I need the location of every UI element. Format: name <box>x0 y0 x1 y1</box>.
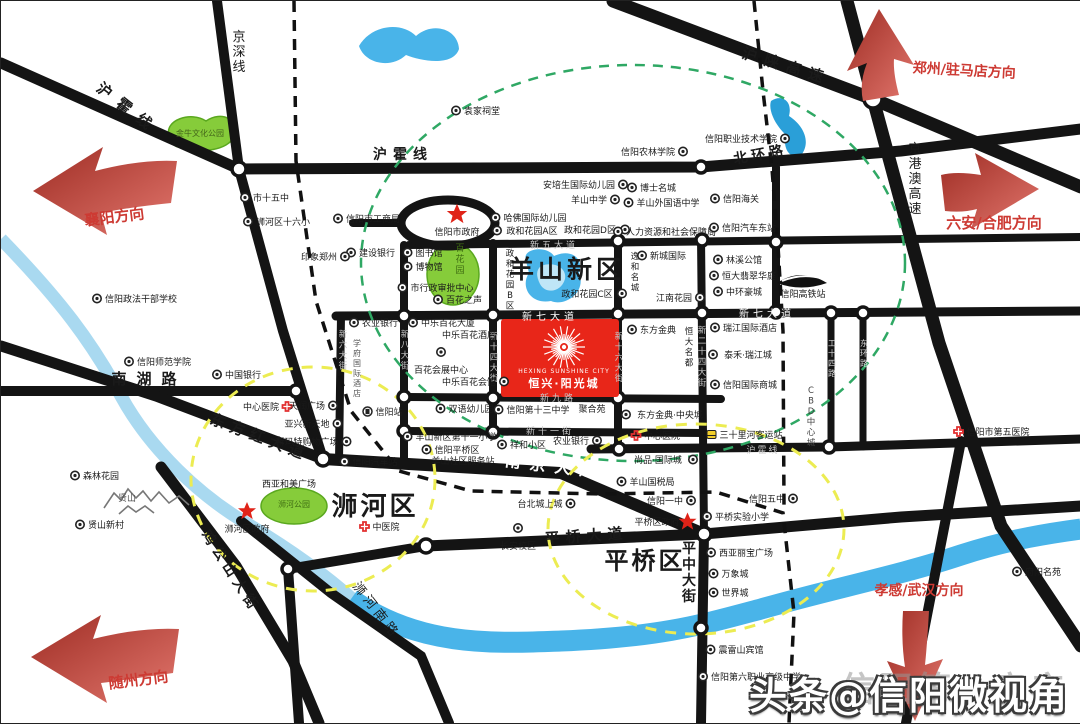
ring-icon <box>709 588 717 596</box>
road-jinggangao-expressway: 京港澳高速 <box>908 142 921 217</box>
ring-icon <box>403 248 411 256</box>
svg-text:沪霍线: 沪霍线 <box>746 444 779 456</box>
road-nanhu-road: 南湖路 <box>111 370 186 388</box>
poi-tianrun-plaza: 天润广场 <box>289 400 337 412</box>
svg-text:羊山新区: 羊山新区 <box>509 255 625 284</box>
poi-yangshan-tax-bureau: 羊山国税局 <box>617 476 674 488</box>
svg-text:新城国际: 新城国际 <box>650 250 686 262</box>
ring-icon <box>714 255 722 263</box>
svg-text:京港澳高速: 京港澳高速 <box>908 142 921 217</box>
svg-text:信阳职业技术学院: 信阳职业技术学院 <box>705 133 777 145</box>
svg-text:羊山外国语中学: 羊山外国语中学 <box>636 197 699 209</box>
poi-baihua-zhisheng: 百花之声 <box>434 294 482 306</box>
svg-text:尚品·国际城: 尚品·国际城 <box>634 454 682 466</box>
poi-dongfang-jindian-central-city: 东方金典·中央城 <box>622 409 703 421</box>
ring-icon <box>514 524 522 532</box>
poi-xuefu-international-hotel: 学府国际酒店 <box>353 338 361 398</box>
poi-linxi-mansion: 林溪公馆 <box>714 254 762 266</box>
svg-text:西亚丽宝广场: 西亚丽宝广场 <box>719 547 773 559</box>
svg-text:新五大道: 新五大道 <box>530 239 578 251</box>
ring-icon <box>76 520 84 528</box>
svg-text:信阳汽车东站: 信阳汽车东站 <box>722 222 776 234</box>
poi-jinniu-culture-park: 金牛文化公园 <box>176 128 224 138</box>
poi-shihe-park: 浉河公园 <box>278 499 310 509</box>
svg-text:羊山新区第十一小学: 羊山新区第十一小学 <box>415 431 496 443</box>
poi-bilingual-kindergarten: 双语幼儿园 <box>436 403 493 415</box>
poi-jiangnan-garden: 江南花园 <box>656 292 704 304</box>
svg-text:新七大道: 新七大道 <box>522 310 578 323</box>
ring-icon <box>241 193 249 201</box>
svg-text:金牛文化公园: 金牛文化公园 <box>176 128 224 138</box>
ring-icon <box>437 348 445 356</box>
district-shihe: 浉河区 <box>331 492 418 522</box>
ring-icon <box>491 213 499 221</box>
poi-baihua-exhibition-center: 百花会展中心 <box>414 348 468 376</box>
svg-text:六安/合肥方向: 六安/合肥方向 <box>946 214 1041 232</box>
direction-zhengzhou-zhumadian: 郑州/驻马店方向 <box>912 59 1016 81</box>
svg-text:浉河区政府: 浉河区政府 <box>224 523 269 535</box>
road-jingshen-line: 京深线 <box>232 30 245 75</box>
road-pingqiao-avenue: 平桥大道 <box>544 524 629 548</box>
poi-xinyang-normal-college: 信阳师范学院 <box>125 356 191 368</box>
ring-icon <box>329 401 337 409</box>
ring-icon <box>452 106 460 114</box>
poi-no13-middle-school: 信阳第十三中学 <box>494 404 569 416</box>
svg-text:东方金典·中央城: 东方金典·中央城 <box>637 409 703 421</box>
svg-text:新十六大街: 新十六大街 <box>615 331 624 384</box>
ring-icon <box>679 147 687 155</box>
svg-text:信阳汽车站: 信阳汽车站 <box>352 456 397 468</box>
ring-icon <box>422 445 430 453</box>
svg-text:京深线: 京深线 <box>232 30 245 75</box>
poi-vocational-technical-college: 信阳职业技术学院 <box>705 133 789 145</box>
poi-taihe-ruijiang-city: 泰禾·瑞江城 <box>709 349 772 361</box>
ring-icon <box>71 471 79 479</box>
svg-text:信阳第十三中学: 信阳第十三中学 <box>506 404 569 416</box>
svg-text:中心医院: 中心医院 <box>243 401 279 413</box>
ring-icon <box>566 499 574 507</box>
svg-text:长安校区: 长安校区 <box>500 540 536 552</box>
svg-text:郑州/驻马店方向: 郑州/驻马店方向 <box>912 59 1016 81</box>
poi-yinxiang-zhengzhou: 印象郑州 <box>301 251 349 263</box>
svg-text:瑞江国际酒店: 瑞江国际酒店 <box>723 322 777 334</box>
poi-shijiecheng: 世界城 <box>709 587 748 599</box>
ring-icon <box>611 195 619 203</box>
poi-construction-bank: 建设银行 <box>347 247 395 259</box>
svg-text:信阳海关: 信阳海关 <box>723 193 759 205</box>
svg-text:信阳市政府: 信阳市政府 <box>434 226 479 238</box>
poi-boshi-mingcheng: 博士名城 <box>628 182 676 194</box>
svg-text:三十里河客运站: 三十里河客运站 <box>719 429 782 441</box>
arrow-suizhou <box>31 615 179 703</box>
svg-text:东环路: 东环路 <box>860 338 868 368</box>
cross-icon <box>360 522 369 531</box>
svg-text:市十五中: 市十五中 <box>253 192 289 204</box>
road-xinliu-street: 新六大街 <box>339 329 348 372</box>
road-xinshiliu-street: 新十六大街 <box>615 331 624 384</box>
ring-icon <box>434 295 442 303</box>
ring-icon <box>494 405 502 413</box>
map-frame: HEXING SUNSHINE CITY 恒兴·阳光城 沪霍线京深线沪霍线沪陕高… <box>0 0 1080 724</box>
svg-text:双语幼儿园: 双语幼儿园 <box>448 403 493 415</box>
ring-icon <box>398 283 406 291</box>
svg-text:政和花园D区: 政和花园D区 <box>564 224 616 236</box>
poi-xinyang-no1-high-school: 信阳一中 <box>647 495 695 507</box>
road-huhuo-line-east: 沪霍线 <box>746 444 779 456</box>
svg-text:图书馆: 图书馆 <box>415 247 442 259</box>
svg-text:建设银行: 建设银行 <box>359 247 395 259</box>
svg-text:百花园: 百花园 <box>455 243 464 276</box>
poi-xinyang-city-government: 信阳市政府 <box>434 204 479 238</box>
arrow-xiaogan-wuhan <box>887 611 943 721</box>
poi-agriculture-forestry-college: 信阳农林学院 <box>621 146 687 158</box>
ring-icon <box>714 287 722 295</box>
svg-text:浉河区: 浉河区 <box>331 492 418 522</box>
ring-icon <box>1013 567 1021 575</box>
poi-human-resources-bureau: 人力资源和社会保障局 <box>614 226 716 238</box>
poi-harvard-kindergarten: 哈佛国际幼儿园 <box>491 212 566 224</box>
ring-icon <box>789 494 797 502</box>
ring-icon <box>706 645 714 653</box>
poi-xinyang-hsr-station: 信阳高铁站 <box>780 288 825 300</box>
svg-text:江南花园: 江南花园 <box>656 292 692 304</box>
svg-text:聚合苑: 聚合苑 <box>578 403 605 415</box>
svg-text:恒大翡翠华庭: 恒大翡翠华庭 <box>722 270 776 282</box>
ring-icon <box>710 271 718 279</box>
poi-juheyuan: 聚合苑 <box>578 403 605 415</box>
svg-text:逸和名城: 逸和名城 <box>631 251 640 294</box>
bus-icon <box>707 431 716 439</box>
poi-no6-vocational-high-school: 信阳第六职业高级中学 <box>699 671 801 683</box>
poi-sanshilihe-bus-station: 三十里河客运站 <box>707 429 783 441</box>
svg-text:工十四路: 工十四路 <box>828 339 836 378</box>
svg-text:平桥大道: 平桥大道 <box>544 524 629 548</box>
svg-text:新玛特购物广场: 新玛特购物广场 <box>275 436 338 448</box>
svg-text:平桥区政府: 平桥区政府 <box>634 516 679 528</box>
poi-xinyang-railway-station: 信阳站 <box>363 406 403 418</box>
svg-text:市行政审批中心: 市行政审批中心 <box>410 282 473 294</box>
poi-traditional-chinese-hospital: 中医院 <box>360 521 400 533</box>
svg-text:浉河区十六小: 浉河区十六小 <box>256 216 310 228</box>
svg-text:印象郑州: 印象郑州 <box>301 251 337 263</box>
svg-text:浉河公园: 浉河公园 <box>278 499 310 509</box>
svg-text:新六大街: 新六大街 <box>339 329 348 372</box>
svg-text:安培生国际幼儿园: 安培生国际幼儿园 <box>543 179 615 191</box>
poi-agricultural-bank-west: 农业银行 <box>350 317 398 329</box>
ring-icon <box>619 180 627 188</box>
poi-taibeicheng-shangcheng: 台北城上城 <box>517 498 574 510</box>
road-donghuan-road: 东环路 <box>860 338 868 368</box>
ring-icon <box>696 293 704 301</box>
poi-yihe-mingcheng: 逸和名城 <box>631 251 640 294</box>
sunburst-core <box>562 345 566 349</box>
direction-xiaogan-wuhan: 孝感/武汉方向 <box>873 582 963 599</box>
svg-text:信阳农林学院: 信阳农林学院 <box>621 146 675 158</box>
road-huhuo-line-n: 沪霍线 <box>373 146 433 163</box>
poi-zhenghe-garden-b: 政和花园B区 <box>506 248 515 312</box>
road-jigongshan-street: 鸡公山大街 <box>197 526 264 616</box>
poi-wanxiangcheng: 万象城 <box>709 568 748 580</box>
poi-zhongle-baihua-hotel: 中乐百花酒店 <box>442 329 496 341</box>
poi-anpeisheng-kindergarten: 安培生国际幼儿园 <box>543 179 627 191</box>
ring-icon <box>711 323 719 331</box>
star-icon <box>447 204 467 223</box>
svg-text:政和花园C区: 政和花园C区 <box>561 288 612 300</box>
ring-icon <box>493 226 501 234</box>
svg-text:信阳师范学院: 信阳师范学院 <box>137 356 191 368</box>
poi-bank-of-china: 中国银行 <box>213 369 261 381</box>
area-cbd-center-city: CBD中心城 <box>807 386 816 449</box>
ring-icon <box>350 318 358 326</box>
ring-icon <box>614 227 622 235</box>
svg-text:信阳市工商局: 信阳市工商局 <box>346 213 400 225</box>
ring-icon <box>498 440 506 448</box>
poi-administrative-approval-center: 市行政审批中心 <box>398 282 473 294</box>
road-ring-city-government <box>401 200 495 246</box>
svg-text:政和花园A区: 政和花园A区 <box>506 225 557 237</box>
svg-text:西亚和美广场: 西亚和美广场 <box>262 478 316 490</box>
poi-xianghe-community: 祥和小区 <box>498 439 546 451</box>
ring-icon <box>244 217 252 225</box>
hsr-station-icon <box>777 275 827 288</box>
ring-icon <box>710 223 718 231</box>
poi-hengda-mingdu: 恒大名都 <box>685 326 694 369</box>
road-xinwu-avenue: 新五大道 <box>530 239 578 251</box>
svg-text:CBD中心城: CBD中心城 <box>807 386 816 449</box>
ring-icon <box>709 569 717 577</box>
svg-text:震雷山宾馆: 震雷山宾馆 <box>718 644 763 656</box>
svg-text:农业银行: 农业银行 <box>553 435 589 447</box>
ring-icon <box>125 357 133 365</box>
svg-text:袁家祠堂: 袁家祠堂 <box>464 105 500 117</box>
svg-text:鸡公山大街: 鸡公山大街 <box>197 526 264 616</box>
ring-icon <box>403 432 411 440</box>
svg-text:贤山新村: 贤山新村 <box>88 519 124 531</box>
landmark-name-cn: 恒兴·阳光城 <box>528 376 599 390</box>
svg-text:中环豪城: 中环豪城 <box>726 286 762 298</box>
svg-text:贤山: 贤山 <box>118 493 136 504</box>
ring-icon <box>781 134 789 142</box>
poi-xincheng-international: 新城国际 <box>638 250 686 262</box>
svg-text:信阳市第五医院: 信阳市第五医院 <box>966 426 1029 438</box>
svg-text:中乐百花大厦: 中乐百花大厦 <box>421 317 475 329</box>
road-xinba-street: 新八大街 <box>401 329 410 372</box>
svg-text:亚兴新天地: 亚兴新天地 <box>284 418 329 430</box>
svg-text:信阳政法干部学校: 信阳政法干部学校 <box>105 293 177 305</box>
ring-icon <box>341 252 349 260</box>
poi-xiya-libao-plaza: 西亚丽宝广场 <box>707 547 773 559</box>
svg-text:沪陕高速: 沪陕高速 <box>740 44 833 88</box>
road-xinershisi-street: 新二十四大街 <box>698 325 707 389</box>
svg-text:人力资源和社会保障局: 人力资源和社会保障局 <box>626 226 716 238</box>
poi-shangpin-international-city: 尚品·国际城 <box>634 454 697 466</box>
poi-xianshan-new-village: 贤山新村 <box>76 519 124 531</box>
ring-icon <box>213 370 221 378</box>
poi-zhenghe-garden-a: 政和花园A区 <box>493 225 558 237</box>
svg-text:恒大名都: 恒大名都 <box>685 326 694 369</box>
svg-text:政和花园B区: 政和花园B区 <box>506 248 515 312</box>
ring-icon <box>618 289 626 297</box>
poi-political-law-cadre-school: 信阳政法干部学校 <box>93 293 177 305</box>
svg-text:森林花园: 森林花园 <box>83 470 119 482</box>
poi-xinyang-international-mall: 信阳国际商城 <box>711 379 777 391</box>
svg-text:南湖路: 南湖路 <box>111 370 186 388</box>
ring-icon <box>707 548 715 556</box>
svg-text:信阳平桥区: 信阳平桥区 <box>434 444 479 456</box>
district-yangshan-new-district: 羊山新区 <box>509 255 625 284</box>
poi-zhongle-baihua-club: 中乐百花会馆 <box>442 376 508 388</box>
ring-icon <box>703 512 711 520</box>
ring-icon <box>500 377 508 385</box>
poi-xinyang-customs: 信阳海关 <box>711 193 759 205</box>
road-path-xinwu <box>409 237 1080 245</box>
svg-text:中乐百花酒店: 中乐百花酒店 <box>442 329 496 341</box>
poi-yangshan-middle-school: 羊山中学 <box>571 194 619 206</box>
poi-yangshan-foreign-language-school: 羊山外国语中学 <box>624 197 699 209</box>
poi-yaxing-new-world: 亚兴新天地 <box>284 418 341 430</box>
ring-icon <box>333 419 341 427</box>
svg-text:百花会展中心: 百花会展中心 <box>414 364 468 376</box>
ring-icon <box>628 325 636 333</box>
lake-north <box>359 27 459 63</box>
poi-museum: 博物馆 <box>403 261 442 273</box>
poi-zhonghuan-haocheng: 中环豪城 <box>714 286 762 298</box>
svg-text:中心医院: 中心医院 <box>644 430 680 442</box>
svg-text:世界城: 世界城 <box>721 587 748 599</box>
poi-xinyang-no5-high-school: 信阳五中 <box>749 493 797 505</box>
road-xinshiyi-street: 新十一街 <box>526 425 574 437</box>
svg-text:新八大街: 新八大街 <box>401 329 410 372</box>
svg-text:中医院: 中医院 <box>372 521 399 533</box>
svg-text:信阳站: 信阳站 <box>375 406 402 418</box>
road-xinqi-avenue-east: 新七大道 <box>739 307 795 320</box>
svg-text:新二十四大街: 新二十四大街 <box>698 325 707 389</box>
poi-yangshan-community-service: 羊山社区服务站 <box>431 455 494 467</box>
poi-xianshan-mountain: 贤山 <box>118 493 136 504</box>
svg-text:羊山社区服务站: 羊山社区服务站 <box>431 455 494 467</box>
train-icon <box>363 407 372 416</box>
svg-text:新九路: 新九路 <box>540 392 576 404</box>
poi-yangshan-no11-primary: 羊山新区第十一小学 <box>403 431 496 443</box>
landmark-hexing-sunshine-city: HEXING SUNSHINE CITY 恒兴·阳光城 <box>501 319 619 397</box>
svg-text:孝感/武汉方向: 孝感/武汉方向 <box>873 582 963 599</box>
poi-pingqiao-experimental-primary: 平桥实验小学 <box>703 511 769 523</box>
ring-icon <box>628 183 636 191</box>
svg-text:中乐百花会馆: 中乐百花会馆 <box>442 376 496 388</box>
ring-icon <box>711 194 719 202</box>
svg-text:百花之声: 百花之声 <box>446 294 482 306</box>
svg-text:泰禾·瑞江城: 泰禾·瑞江城 <box>724 349 772 361</box>
svg-text:新十一街: 新十一街 <box>526 425 574 437</box>
poi-industry-commerce-bureau: 信阳市工商局 <box>334 213 400 225</box>
svg-text:信阳五中: 信阳五中 <box>749 493 785 505</box>
district-pingqiao: 平桥区 <box>605 547 686 575</box>
poi-zhenleishan-hotel: 震雷山宾馆 <box>706 644 763 656</box>
ring-icon <box>699 672 707 680</box>
svg-text:哈佛国际幼儿园: 哈佛国际幼儿园 <box>503 212 566 224</box>
ring-icon <box>709 350 717 358</box>
svg-text:学府国际酒店: 学府国际酒店 <box>353 338 361 398</box>
ring-icon <box>334 214 342 222</box>
svg-text:台北城上城: 台北城上城 <box>517 498 562 510</box>
svg-text:羊山中学: 羊山中学 <box>571 194 607 206</box>
svg-text:农业银行: 农业银行 <box>362 317 398 329</box>
ring-icon <box>93 294 101 302</box>
city-location-map: HEXING SUNSHINE CITY 恒兴·阳光城 沪霍线京深线沪霍线沪陕高… <box>1 1 1080 723</box>
poi-library: 图书馆 <box>403 247 442 259</box>
road-hushan-expressway: 沪陕高速 <box>740 44 833 88</box>
svg-text:信阳一中: 信阳一中 <box>647 495 683 507</box>
road-xinqi-avenue-west: 新七大道 <box>522 310 578 323</box>
ring-icon <box>711 380 719 388</box>
svg-text:东方金典: 东方金典 <box>640 324 676 336</box>
poi-dongfang-jindian: 东方金典 <box>628 324 676 336</box>
svg-text:平桥区: 平桥区 <box>605 547 686 575</box>
ring-icon <box>342 437 350 445</box>
poi-baihua-garden: 百花园 <box>455 243 464 276</box>
poi-central-hospital-west: 中心医院 <box>243 401 292 413</box>
road-xinjiu-road: 新九路 <box>540 392 576 404</box>
ring-icon <box>340 457 348 465</box>
poi-forest-garden: 森林花园 <box>71 470 119 482</box>
poi-xiya-hemei-plaza: 西亚和美广场 <box>262 478 316 490</box>
direction-luan-hefei: 六安/合肥方向 <box>946 214 1041 232</box>
svg-text:万象城: 万象城 <box>721 568 748 580</box>
ring-icon <box>593 436 601 444</box>
poi-east-bus-station: 信阳汽车东站 <box>710 222 776 234</box>
svg-text:中国银行: 中国银行 <box>225 369 261 381</box>
ring-icon <box>624 198 632 206</box>
svg-text:信阳第六职业高级中学: 信阳第六职业高级中学 <box>711 671 801 683</box>
svg-text:新七大道: 新七大道 <box>739 307 795 320</box>
ring-icon <box>687 496 695 504</box>
ring-icon <box>617 477 625 485</box>
ring-icon <box>622 410 630 418</box>
poi-hengda-feicui-huating: 恒大翡翠华庭 <box>710 270 776 282</box>
svg-text:沪霍线: 沪霍线 <box>373 146 433 163</box>
ring-icon <box>403 262 411 270</box>
ring-icon <box>409 318 417 326</box>
svg-text:羊山国税局: 羊山国税局 <box>629 476 674 488</box>
svg-text:信阳高铁站: 信阳高铁站 <box>780 288 825 300</box>
ring-icon <box>436 404 444 412</box>
poi-ruijiang-international-hotel: 瑞江国际酒店 <box>711 322 777 334</box>
svg-text:林溪公馆: 林溪公馆 <box>726 254 762 266</box>
landmark-name-en: HEXING SUNSHINE CITY <box>518 368 609 375</box>
road-gongshisi-road: 工十四路 <box>828 339 836 378</box>
svg-text:信阳国际商城: 信阳国际商城 <box>723 379 777 391</box>
svg-text:天润广场: 天润广场 <box>289 400 325 412</box>
svg-text:府阳名苑: 府阳名苑 <box>1025 566 1061 578</box>
svg-text:博士名城: 博士名城 <box>640 182 676 194</box>
poi-fuyang-mingyuan: 府阳名苑 <box>1013 566 1061 578</box>
svg-text:平桥实验小学: 平桥实验小学 <box>715 511 769 523</box>
ring-icon <box>689 455 697 463</box>
svg-text:博物馆: 博物馆 <box>415 261 442 273</box>
svg-text:祥和小区: 祥和小区 <box>510 439 546 451</box>
poi-yuanjia-ancestral-hall: 袁家祠堂 <box>452 105 500 117</box>
